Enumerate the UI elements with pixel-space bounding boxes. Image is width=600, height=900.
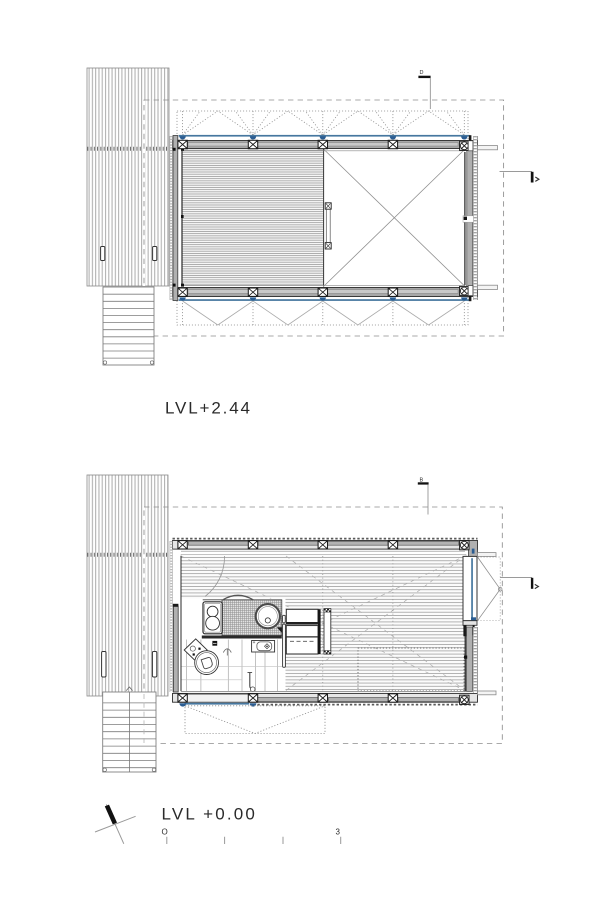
- svg-text:3: 3: [336, 828, 341, 837]
- svg-text:O: O: [162, 828, 168, 837]
- svg-text:D: D: [420, 70, 424, 76]
- svg-text:LVL+2.44: LVL+2.44: [165, 399, 252, 418]
- svg-text:LVL +0.00: LVL +0.00: [162, 804, 257, 823]
